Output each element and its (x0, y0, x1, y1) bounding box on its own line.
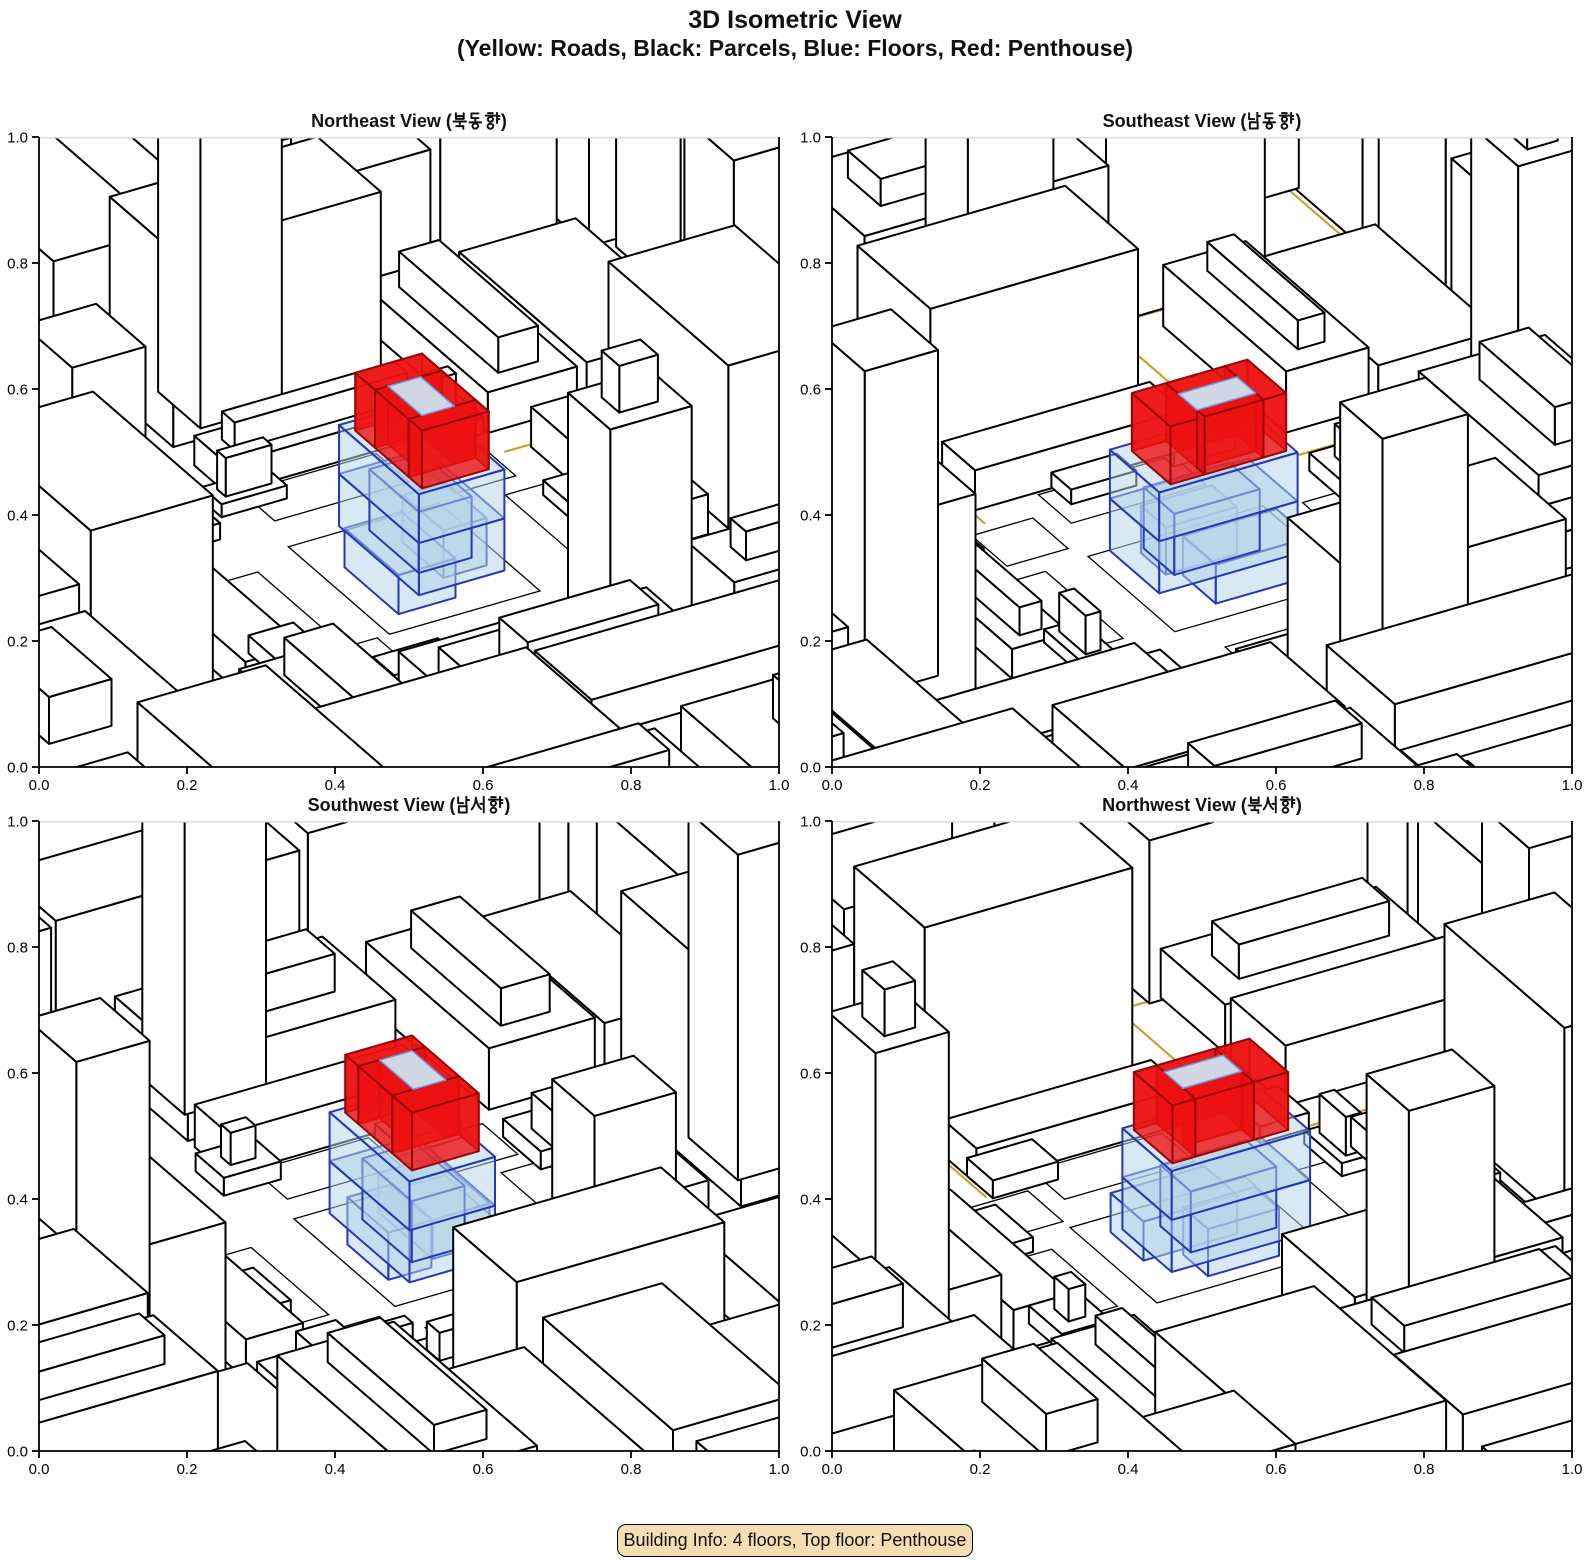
svg-text:0.8: 0.8 (1414, 777, 1435, 794)
svg-text:0.6: 0.6 (473, 777, 494, 794)
svg-text:0.8: 0.8 (800, 256, 821, 273)
svg-text:0.0: 0.0 (29, 1461, 50, 1478)
svg-text:0.2: 0.2 (177, 777, 198, 794)
svg-text:0.6: 0.6 (800, 382, 821, 399)
svg-text:0.6: 0.6 (1266, 777, 1287, 794)
svg-text:0.0: 0.0 (822, 777, 843, 794)
svg-text:0.0: 0.0 (29, 777, 50, 794)
svg-text:1.0: 1.0 (769, 1461, 790, 1478)
svg-text:0.6: 0.6 (800, 1066, 821, 1083)
svg-text:1.0: 1.0 (1562, 1461, 1583, 1478)
svg-text:0.4: 0.4 (7, 1192, 28, 1209)
svg-text:0.8: 0.8 (800, 940, 821, 957)
svg-text:0.0: 0.0 (800, 1444, 821, 1461)
svg-text:0.2: 0.2 (800, 1318, 821, 1335)
svg-text:0.0: 0.0 (7, 760, 28, 777)
svg-text:0.4: 0.4 (800, 508, 821, 525)
svg-text:0.0: 0.0 (7, 1444, 28, 1461)
svg-text:0.4: 0.4 (7, 508, 28, 525)
svg-text:0.6: 0.6 (473, 1461, 494, 1478)
svg-text:0.8: 0.8 (7, 940, 28, 957)
svg-text:1.0: 1.0 (769, 777, 790, 794)
svg-text:0.4: 0.4 (325, 1461, 346, 1478)
svg-text:1.0: 1.0 (800, 130, 821, 147)
svg-text:1.0: 1.0 (7, 814, 28, 831)
svg-text:0.8: 0.8 (7, 256, 28, 273)
svg-text:0.2: 0.2 (970, 1461, 991, 1478)
svg-text:0.2: 0.2 (177, 1461, 198, 1478)
svg-text:0.6: 0.6 (7, 1066, 28, 1083)
svg-text:0.4: 0.4 (325, 777, 346, 794)
svg-text:0.0: 0.0 (800, 760, 821, 777)
svg-text:0.8: 0.8 (621, 777, 642, 794)
svg-text:0.2: 0.2 (7, 634, 28, 651)
svg-text:1.0: 1.0 (7, 130, 28, 147)
svg-text:0.2: 0.2 (970, 777, 991, 794)
svg-text:0.8: 0.8 (1414, 1461, 1435, 1478)
svg-text:0.6: 0.6 (1266, 1461, 1287, 1478)
svg-text:0.0: 0.0 (822, 1461, 843, 1478)
svg-text:0.8: 0.8 (621, 1461, 642, 1478)
svg-text:0.4: 0.4 (1118, 777, 1139, 794)
svg-text:0.4: 0.4 (1118, 1461, 1139, 1478)
svg-text:1.0: 1.0 (800, 814, 821, 831)
svg-text:0.2: 0.2 (7, 1318, 28, 1335)
svg-text:0.4: 0.4 (800, 1192, 821, 1209)
svg-text:0.2: 0.2 (800, 634, 821, 651)
svg-text:0.6: 0.6 (7, 382, 28, 399)
svg-text:1.0: 1.0 (1562, 777, 1583, 794)
